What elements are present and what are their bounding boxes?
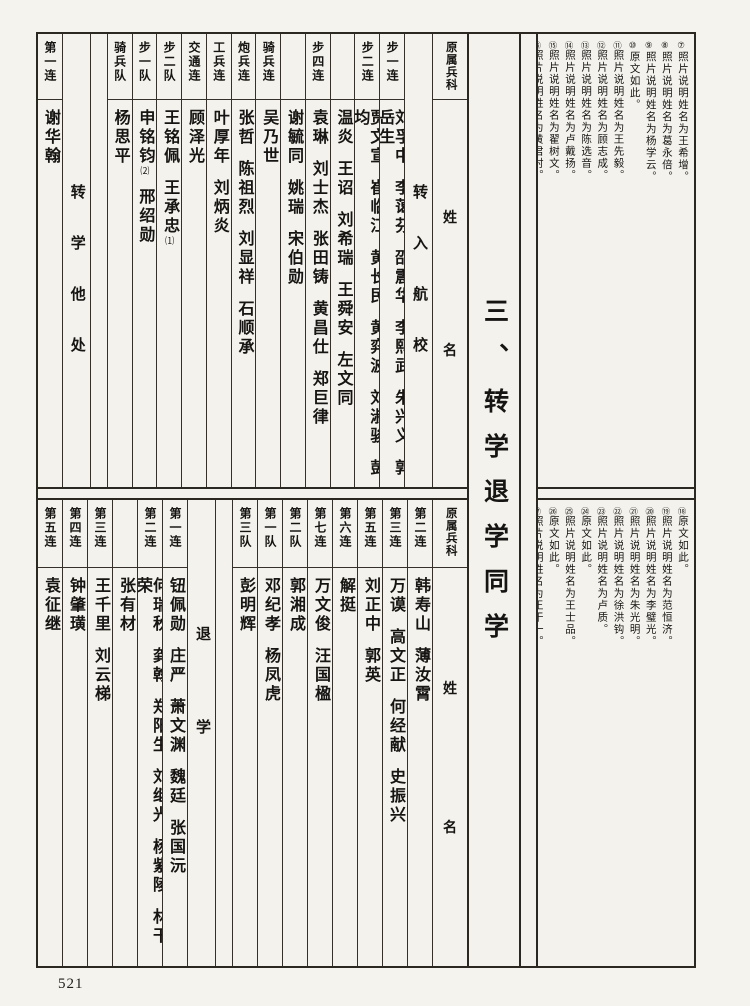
student-name: 魏廷 [167, 768, 184, 806]
transfer-table: 第一连谢华翰转学他处骑兵队杨思平步一队申铭钧⑵邢绍勋步二队王铭佩王承忠⑴交通连顾… [38, 34, 467, 487]
student-name: 刘希瑞 [335, 211, 352, 268]
student-name: 黄长民 [367, 249, 379, 306]
student-name: 韩寿山 [412, 577, 429, 634]
column-header: 原属兵科 [444, 41, 456, 91]
footnote-number: ⑦ [677, 41, 687, 51]
student-name: 钮佩勋 [167, 577, 184, 634]
footnotes-top-block: ⑦照片说明姓名为王希增。⑧照片说明姓名为葛永倍。⑨照片说明姓名为杨学云。⑩原文如… [538, 34, 694, 487]
table-column: 第四连钟肇璜 [62, 500, 87, 966]
table-column: 步四连袁琳刘士杰张田铸黄昌仕郑巨律 [305, 34, 330, 487]
student-name: 何瑞秋 [150, 577, 162, 634]
footnote-number: ㉑ [629, 507, 639, 516]
student-name: 郑阳生 [150, 698, 162, 755]
column-header: 炮兵连 [237, 41, 249, 83]
footnote: ㉔原文如此。 [579, 507, 593, 966]
column-header: 工兵连 [213, 41, 225, 83]
origin-corps-column: 原属兵科姓名 [432, 34, 467, 487]
footnote: ⑨照片说明姓名为杨学云。 [643, 41, 657, 487]
table-column: 骑兵队杨思平 [107, 34, 132, 487]
table-column: 第三队彭明辉 [232, 500, 257, 966]
withdrawal-table: 第五连袁征继第四连钟肇璜第三连王千里刘云梯张有材第二连何瑞秋龚翰郑阳生刘继光杨紫… [38, 500, 467, 966]
footnote: ⑭照片说明姓名为卢戴扬。 [562, 41, 576, 487]
student-name: 杨思平 [112, 109, 129, 166]
footnote-number: ⑨ [645, 41, 655, 51]
page-number: 521 [58, 976, 84, 993]
footnote: ⑬照片说明姓名为陈选音。 [579, 41, 593, 487]
student-name: 刘炳炎 [211, 179, 228, 236]
category-label: 转入航校 [411, 34, 426, 388]
student-name: 顾泽光 [186, 109, 203, 166]
footnote-number: ㉗ [538, 507, 542, 516]
student-name: 刘继光 [150, 768, 162, 825]
table-column: 第五连刘正中郭英 [357, 500, 382, 966]
footnote-number: ⑮ [548, 41, 558, 50]
column-header: 原属兵科 [444, 507, 456, 557]
footnote-number: ㉒ [612, 507, 622, 516]
footnote: ㉖原文如此。 [546, 507, 560, 966]
student-name: 王承忠⑴ [161, 179, 178, 245]
student-name: 朱兴义 [392, 389, 404, 446]
table-column: 第二连何瑞秋龚翰郑阳生刘继光杨紫陵林干荣 [137, 500, 162, 966]
student-name: 袁琳 [310, 109, 327, 147]
column-header: 第三连 [94, 507, 106, 549]
footnote-number: ⑱ [677, 507, 687, 516]
table-column: 炮兵连张哲陈祖烈刘显祥石顺承 [231, 34, 256, 487]
table-column: 谢毓同姚瑞宋伯勋 [280, 34, 305, 487]
student-name: 谢毓同 [285, 109, 302, 166]
spacer-column [90, 34, 107, 487]
student-name: 龚翰 [150, 647, 162, 685]
student-name: 张哲 [235, 109, 252, 147]
table-column: 第三连王千里刘云梯 [87, 500, 112, 966]
student-name: 邓纪孝 [262, 577, 279, 634]
table-column: 步一连刘孚中李蔼芬邵震华李熙武朱兴义郭岳生 [379, 34, 404, 487]
student-name: 温炎 [335, 109, 352, 147]
name-column-label: 名 [443, 340, 457, 360]
student-name: 左文同 [335, 351, 352, 408]
column-header: 第五连 [44, 507, 56, 549]
student-name: 杨紫陵 [150, 838, 162, 895]
footnote: ⑧照片说明姓名为葛永倍。 [659, 41, 673, 487]
category-label: 转学他处 [69, 34, 84, 388]
student-name: 汪国楹 [312, 647, 329, 704]
table-column: 第二连韩寿山薄汝霄 [407, 500, 432, 966]
column-header: 第一连 [169, 507, 181, 549]
column-header: 第二队 [289, 507, 301, 549]
footnote-marker: ⑴ [164, 236, 174, 245]
column-header: 第三连 [389, 507, 401, 549]
column-header: 步一队 [138, 41, 150, 83]
column-header: 步二连 [361, 41, 373, 83]
category-column: 转入航校 [404, 34, 432, 487]
column-header: 第六连 [339, 507, 351, 549]
student-name: 宋伯勋 [285, 230, 302, 287]
student-name: 庄严 [167, 647, 184, 685]
table-sheet: 第一连谢华翰转学他处骑兵队杨思平步一队申铭钧⑵邢绍勋步二队王铭佩王承忠⑴交通连顾… [36, 32, 696, 968]
footnote: ⑪照片说明姓名为王先毅。 [611, 41, 625, 487]
footnotes-bottom-block: ⑱原文如此。⑲照片说明姓名为范恒济。⑳照片说明姓名为李璧光。㉑照片说明姓名为朱光… [538, 500, 694, 966]
footnote-marker: ⑵ [139, 166, 149, 175]
column-header: 步四连 [312, 41, 324, 83]
footnotes-column: ⑦照片说明姓名为王希增。⑧照片说明姓名为葛永倍。⑨照片说明姓名为杨学云。⑩原文如… [536, 34, 694, 966]
student-name: 袁征继 [42, 577, 59, 634]
footnote: ⑯照片说明姓名为黄君村。 [538, 41, 544, 487]
footnote: ㉓照片说明姓名为卢质。 [595, 507, 609, 966]
column-header: 交通连 [188, 41, 200, 83]
footnote: ⑩原文如此。 [627, 41, 641, 487]
table-column: 第五连袁征继 [38, 500, 62, 966]
student-name: 杨凤虎 [262, 647, 279, 704]
table-column: 第七连万文俊汪国楹 [307, 500, 332, 966]
footnote-number: ⑧ [661, 41, 671, 51]
student-name: 刘云梯 [92, 647, 109, 704]
table-column: 第三连万谟高文正何经献史振兴 [382, 500, 407, 966]
footnote-number: ㉕ [564, 507, 574, 516]
column-header: 骑兵队 [114, 41, 126, 83]
footnote-number: ⑳ [645, 507, 655, 516]
footnotes-divider [538, 487, 694, 500]
column-header: 步二队 [163, 41, 175, 83]
column-header: 第五连 [364, 507, 376, 549]
footnote-number: ⑫ [596, 41, 606, 50]
student-name: 刘显祥 [235, 230, 252, 287]
student-name: 黄弈波 [367, 319, 379, 376]
student-name: 刘正中 [362, 577, 379, 634]
table-column: 第二队郭湘成 [282, 500, 307, 966]
student-name: 刘孚中 [392, 109, 404, 166]
student-name: 陈祖烈 [235, 160, 252, 217]
student-name: 王铭佩 [161, 109, 178, 166]
student-name: 王舜安 [335, 281, 352, 338]
table-column: 第一连谢华翰 [38, 34, 62, 487]
student-name: 万文俊 [312, 577, 329, 634]
footnote: ㉑照片说明姓名为朱光明。 [627, 507, 641, 966]
main-table-area: 第一连谢华翰转学他处骑兵队杨思平步一队申铭钧⑵邢绍勋步二队王铭佩王承忠⑴交通连顾… [38, 34, 467, 966]
footnote-number: ⑯ [538, 41, 542, 50]
student-name: 郭英 [362, 647, 379, 685]
name-column-label: 名 [443, 817, 457, 837]
name-column-label: 姓 [443, 207, 457, 227]
column-header: 步一连 [386, 41, 398, 83]
student-name: 何经献 [387, 698, 404, 755]
table-column: 步二连贾文宣崔临江黄长民黄弈波刘淑骏彭均 [354, 34, 379, 487]
name-column-label: 姓 [443, 678, 457, 698]
student-name: 叶厚年 [211, 109, 228, 166]
table-column: 第六连解挺 [332, 500, 357, 966]
section-title: 三、转学退学同学 [482, 34, 507, 966]
footnote: ⑲照片说明姓名为范恒济。 [659, 507, 673, 966]
student-name: 崔临江 [367, 179, 379, 236]
footnote: ⑮照片说明姓名为翟树文。 [546, 41, 560, 487]
student-name: 萧文渊 [167, 698, 184, 755]
student-name: 李熙武 [392, 319, 404, 376]
student-name: 高文正 [387, 628, 404, 685]
category-column: 退学 [187, 500, 215, 966]
footnote-number: ⑪ [612, 41, 622, 50]
footnote: ㉒照片说明姓名为徐洪钩。 [611, 507, 625, 966]
student-name: 钟肇璜 [67, 577, 84, 634]
footnote: ⑦照片说明姓名为王希增。 [675, 41, 689, 487]
student-name: 刘淑骏 [367, 389, 379, 446]
footnote-number: ⑬ [580, 41, 590, 50]
footnote-number: ㉔ [580, 507, 590, 516]
category-label: 退学 [194, 500, 209, 812]
student-name: 刘士杰 [310, 160, 327, 217]
student-name: 贾文宣 [367, 109, 379, 166]
student-name: 张田铸 [310, 230, 327, 287]
footnote-number: ⑲ [661, 507, 671, 516]
column-header: 第四连 [69, 507, 81, 549]
student-name: 薄汝霄 [412, 647, 429, 704]
footnote: ㉗照片说明姓名为王干一。 [538, 507, 544, 966]
column-header: 第二连 [144, 507, 156, 549]
footnote-number: ㉖ [548, 507, 558, 516]
student-name: 申铭钧⑵ [136, 109, 153, 175]
column-header: 第一连 [44, 41, 56, 83]
gutter [521, 34, 536, 966]
student-name: 王千里 [92, 577, 109, 634]
footnote: ⑱原文如此。 [675, 507, 689, 966]
student-name: 史振兴 [387, 768, 404, 825]
table-column: 骑兵连吴乃世 [255, 34, 280, 487]
footnote: ㉕照片说明姓名为王士品。 [562, 507, 576, 966]
student-name: 张有材 [117, 577, 134, 634]
horizontal-divider [38, 487, 467, 500]
footnote-number: ⑭ [564, 41, 574, 50]
table-column: 第一连钮佩勋庄严萧文渊魏廷张国沅 [162, 500, 187, 966]
column-header: 骑兵连 [262, 41, 274, 83]
table-column: 工兵连叶厚年刘炳炎 [206, 34, 231, 487]
student-name: 姚瑞 [285, 179, 302, 217]
student-name: 张国沅 [167, 819, 184, 876]
column-header: 第七连 [314, 507, 326, 549]
spacer-column [215, 500, 232, 966]
footnote: ⑫照片说明姓名为顾志成。 [595, 41, 609, 487]
student-name: 王诏 [335, 160, 352, 198]
table-column: 温炎王诏刘希瑞王舜安左文同 [330, 34, 355, 487]
footnote-number: ⑩ [629, 41, 639, 51]
student-name: 郑巨律 [310, 370, 327, 427]
student-name: 邢绍勋 [136, 188, 153, 245]
student-name: 李蔼芬 [392, 179, 404, 236]
student-name: 彭明辉 [237, 577, 254, 634]
table-column: 步二队王铭佩王承忠⑴ [156, 34, 181, 487]
table-column: 交通连顾泽光 [181, 34, 206, 487]
category-column: 转学他处 [62, 34, 90, 487]
column-header: 第三队 [239, 507, 251, 549]
student-name: 万谟 [387, 577, 404, 615]
scanned-register-page: 第一连谢华翰转学他处骑兵队杨思平步一队申铭钧⑵邢绍勋步二队王铭佩王承忠⑴交通连顾… [0, 0, 750, 1006]
footnote: ⑳照片说明姓名为李璧光。 [643, 507, 657, 966]
student-name: 吴乃世 [260, 109, 277, 166]
section-title-column: 三、转学退学同学 [467, 34, 521, 966]
origin-corps-column: 原属兵科姓名 [432, 500, 467, 966]
student-name: 黄昌仕 [310, 300, 327, 357]
table-column: 步一队申铭钧⑵邢绍勋 [132, 34, 157, 487]
column-header: 第一队 [264, 507, 276, 549]
student-name: 郭湘成 [287, 577, 304, 634]
student-name: 邵震华 [392, 249, 404, 306]
table-column: 第一队邓纪孝杨凤虎 [257, 500, 282, 966]
student-name: 石顺承 [235, 300, 252, 357]
table-column: 张有材 [112, 500, 137, 966]
student-name: 解挺 [337, 577, 354, 615]
footnote-number: ㉓ [596, 507, 606, 516]
column-header: 第二连 [414, 507, 426, 549]
student-name: 谢华翰 [42, 109, 59, 166]
